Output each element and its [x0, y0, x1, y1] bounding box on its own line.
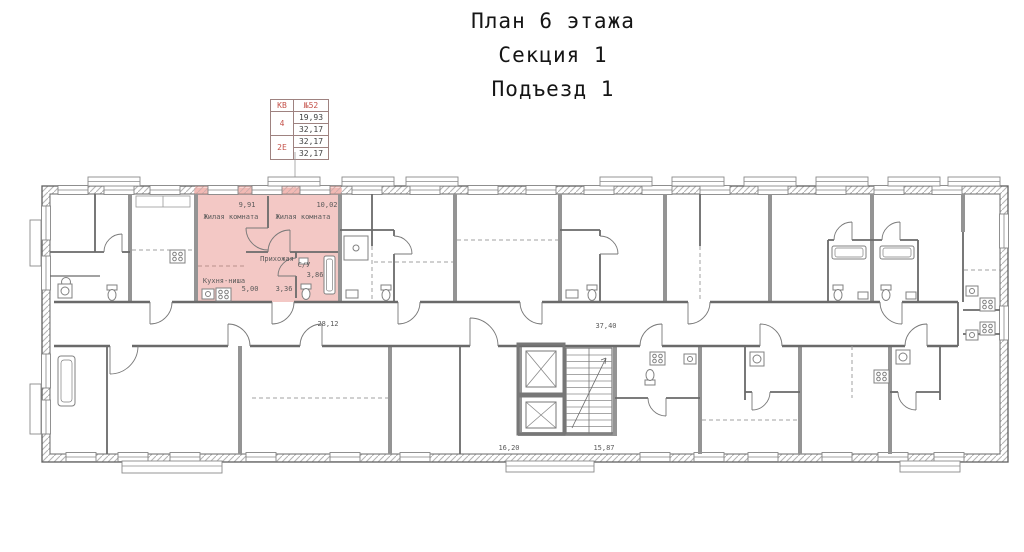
staircase	[566, 348, 612, 434]
elevator-core	[518, 344, 564, 434]
elevator-x-icon-2	[526, 402, 556, 428]
room-area-kitchen: 5,00	[242, 285, 259, 293]
balcony-frames	[30, 177, 1000, 473]
stove-icon	[980, 298, 995, 311]
room-area-living-1: 9,91	[239, 201, 256, 209]
room-label-living-2: Жилая комната	[276, 213, 331, 221]
shower-icon	[344, 236, 368, 260]
toilet-icon	[381, 285, 391, 301]
stove-icon	[170, 250, 185, 263]
exterior-walls	[42, 186, 1008, 462]
room-label-kitchen: Кухня-ниша	[203, 277, 245, 285]
kitchen-sink-icon	[966, 286, 978, 296]
toilet-icon	[301, 284, 311, 300]
corridor-walls	[54, 302, 958, 346]
stove-icon	[874, 370, 889, 383]
room-label-bathroom: С/У	[298, 261, 311, 269]
toilet-icon	[881, 285, 891, 301]
bathtub-icon	[58, 356, 75, 406]
hall-area-right: 15,87	[593, 444, 614, 452]
floor-plan: Жилая комната 9,91 Жилая комната 10,02 П…	[0, 0, 1024, 552]
toilet-icon	[107, 285, 117, 301]
sink-icon	[566, 290, 578, 298]
corridor-area-right: 37,40	[595, 322, 616, 330]
toilet-icon	[833, 285, 843, 301]
room-label-living-1: Жилая комната	[204, 213, 259, 221]
corridor-area-left: 28,12	[317, 320, 338, 328]
elevator-x-icon	[526, 351, 556, 387]
room-area-hallway: 3,36	[276, 285, 293, 293]
hall-area-left: 16,20	[498, 444, 519, 452]
stove-icon	[980, 322, 995, 335]
stove-icon	[216, 288, 231, 301]
kitchen-sink-icon	[202, 289, 214, 299]
room-area-living-2: 10,02	[316, 201, 337, 209]
partition-walls	[50, 194, 1000, 454]
sink-icon	[346, 290, 358, 298]
sink-icon	[858, 292, 868, 299]
toilet-icon	[587, 285, 597, 301]
sink-icon	[906, 292, 916, 299]
room-area-bathroom: 3,86	[307, 271, 324, 279]
kitchen-sink-icon	[684, 354, 696, 364]
washer-icon	[896, 350, 910, 364]
washer-icon	[58, 284, 72, 298]
toilet-icon	[645, 370, 655, 386]
kitchen-sink-icon	[966, 330, 978, 340]
washer-icon	[750, 352, 764, 366]
room-label-hallway: Прихожая	[260, 255, 294, 263]
stove-icon	[650, 352, 665, 365]
